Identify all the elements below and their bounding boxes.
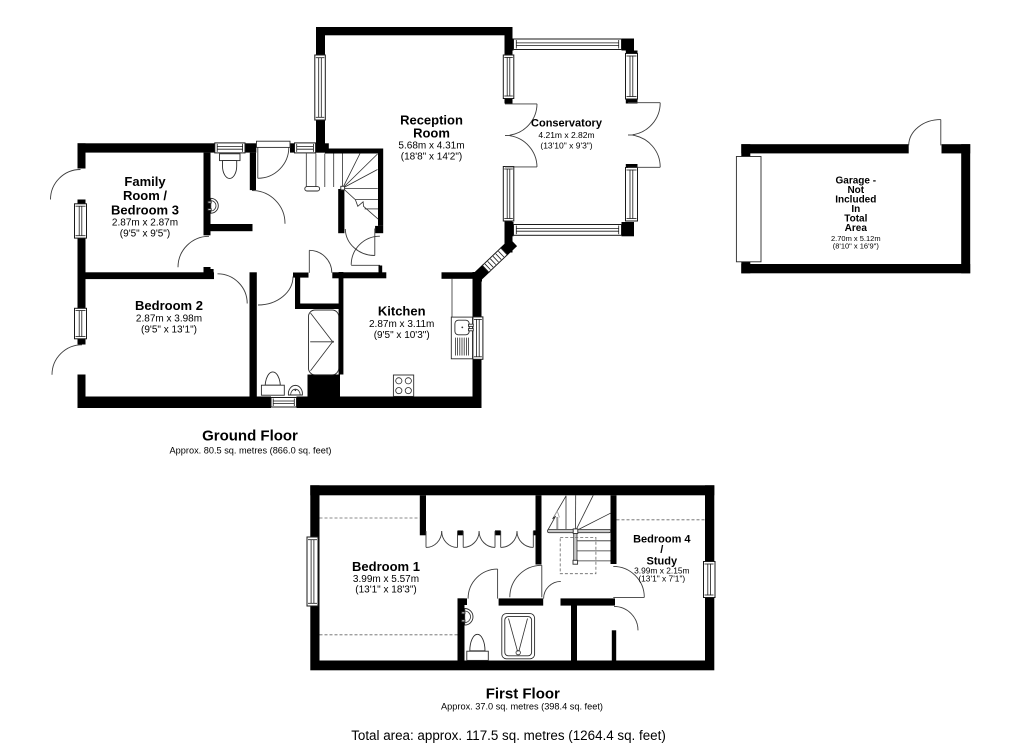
svg-text:First Floor: First Floor [486, 685, 560, 702]
svg-text:Room: Room [413, 125, 450, 140]
svg-text:4.21m x 2.82m: 4.21m x 2.82m [538, 130, 594, 140]
svg-text:Conservatory: Conservatory [531, 118, 603, 130]
svg-text:Bedroom 1: Bedroom 1 [352, 559, 420, 574]
svg-text:Kitchen: Kitchen [378, 304, 426, 319]
svg-text:(8'10" x 16'9"): (8'10" x 16'9") [833, 241, 880, 250]
svg-text:Ground Floor: Ground Floor [202, 428, 298, 445]
svg-text:Family: Family [124, 174, 166, 189]
svg-text:(13'1" x 7'1"): (13'1" x 7'1") [638, 574, 685, 584]
svg-text:/: / [660, 544, 663, 556]
svg-text:(13'1" x 18'3"): (13'1" x 18'3") [355, 585, 417, 596]
svg-text:(13'10" x 9'3"): (13'10" x 9'3") [540, 141, 592, 151]
svg-text:Area: Area [845, 223, 868, 234]
svg-text:5.68m x 4.31m: 5.68m x 4.31m [398, 141, 464, 152]
svg-text:Bedroom 2: Bedroom 2 [135, 298, 203, 313]
svg-text:(18'8" x 14'2"): (18'8" x 14'2") [401, 152, 463, 163]
svg-text:2.87m x 2.87m: 2.87m x 2.87m [112, 217, 178, 228]
svg-text:(9'5" x 10'3"): (9'5" x 10'3") [374, 330, 430, 341]
svg-text:(9'5" x 13'1"): (9'5" x 13'1") [141, 324, 197, 335]
svg-text:2.87m x 3.98m: 2.87m x 3.98m [136, 313, 202, 324]
svg-text:2.87m x 3.11m: 2.87m x 3.11m [369, 319, 434, 330]
svg-text:Total area: approx. 117.5 sq.: Total area: approx. 117.5 sq. metres (12… [351, 728, 666, 743]
svg-text:(9'5" x 9'5"): (9'5" x 9'5") [120, 228, 170, 239]
svg-text:Approx. 37.0 sq. metres (398.4: Approx. 37.0 sq. metres (398.4 sq. feet) [441, 702, 603, 712]
svg-text:Room /: Room / [123, 188, 167, 203]
svg-text:Bedroom 3: Bedroom 3 [111, 202, 179, 217]
svg-text:Approx. 80.5 sq. metres (866.0: Approx. 80.5 sq. metres (866.0 sq. feet) [170, 445, 332, 455]
svg-text:3.99m x 5.57m: 3.99m x 5.57m [353, 574, 419, 585]
